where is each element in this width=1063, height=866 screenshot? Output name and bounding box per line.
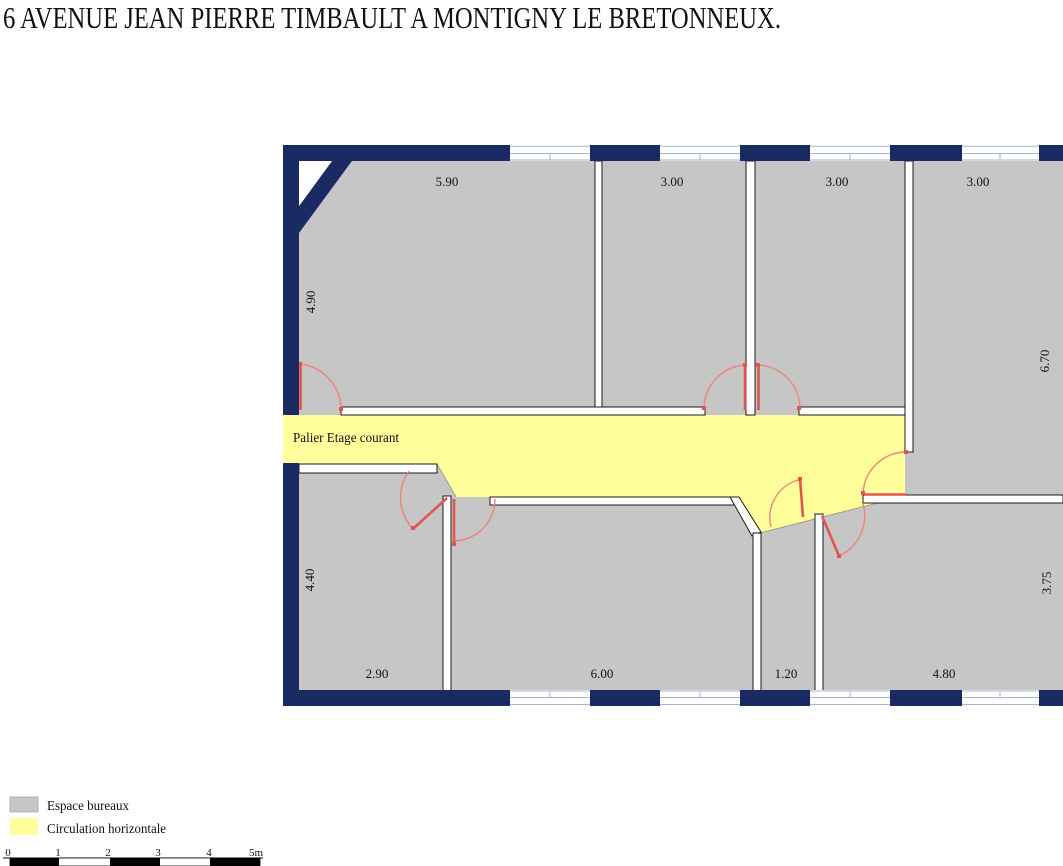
legend-label-circulation: Circulation horizontale [47, 822, 166, 837]
dim-label-left-1: 4.90 [303, 291, 318, 314]
dim-label-bottom-2: 6.00 [591, 666, 614, 681]
partition-room6-passage [753, 533, 761, 693]
scale-bar: 0 1 2 3 4 5m [3, 847, 263, 866]
outer-wall-left-upper [283, 145, 299, 415]
partition-room5-room6 [443, 496, 451, 693]
dim-label-top-4: 3.00 [967, 174, 990, 189]
dim-label-right-1: 6.70 [1037, 350, 1052, 373]
dim-label-bottom-1: 2.90 [366, 666, 389, 681]
corridor-label: Palier Etage courant [293, 430, 399, 445]
corridor-top-wall-right [799, 407, 905, 415]
scale-label-1: 1 [55, 847, 61, 859]
room4-room7-divider-wall [863, 495, 1063, 503]
page-title: 6 AVENUE JEAN PIERRE TIMBAULT A MONTIGNY… [3, 0, 781, 35]
legend: Espace bureaux Circulation horizontale [10, 797, 166, 837]
floor-plan-page: 6 AVENUE JEAN PIERRE TIMBAULT A MONTIGNY… [0, 0, 1063, 866]
scale-label-2: 2 [105, 847, 111, 859]
legend-label-offices: Espace bureaux [47, 799, 129, 814]
scale-label-0: 0 [5, 847, 11, 859]
outer-wall-left-lower [283, 463, 299, 706]
dim-label-top-2: 3.00 [661, 174, 684, 189]
scale-label-4: 4 [206, 847, 212, 859]
scale-label-5: 5m [249, 847, 264, 859]
dim-label-right-2: 3.75 [1039, 572, 1054, 595]
dim-label-bottom-3: 1.20 [775, 666, 798, 681]
legend-swatch-offices [10, 797, 38, 812]
dim-label-left-2: 4.40 [302, 569, 317, 592]
scale-bar-segments [10, 858, 260, 866]
partition-passage-room7 [815, 514, 823, 693]
corridor-top-wall-left [341, 407, 705, 415]
room6-top-wall [490, 497, 737, 505]
legend-swatch-circulation [10, 818, 38, 835]
dim-label-top-3: 3.00 [826, 174, 849, 189]
partition-room3-room4 [905, 161, 913, 452]
corridor-bottom-wall-left [299, 464, 437, 473]
scale-label-3: 3 [155, 847, 161, 859]
floor-plan-drawing: 6 AVENUE JEAN PIERRE TIMBAULT A MONTIGNY… [0, 0, 1063, 866]
dim-label-bottom-4: 4.80 [933, 666, 956, 681]
partition-room2-room3 [746, 161, 755, 415]
partition-room1-room2 [595, 161, 602, 407]
dim-label-top-1: 5.90 [436, 174, 459, 189]
